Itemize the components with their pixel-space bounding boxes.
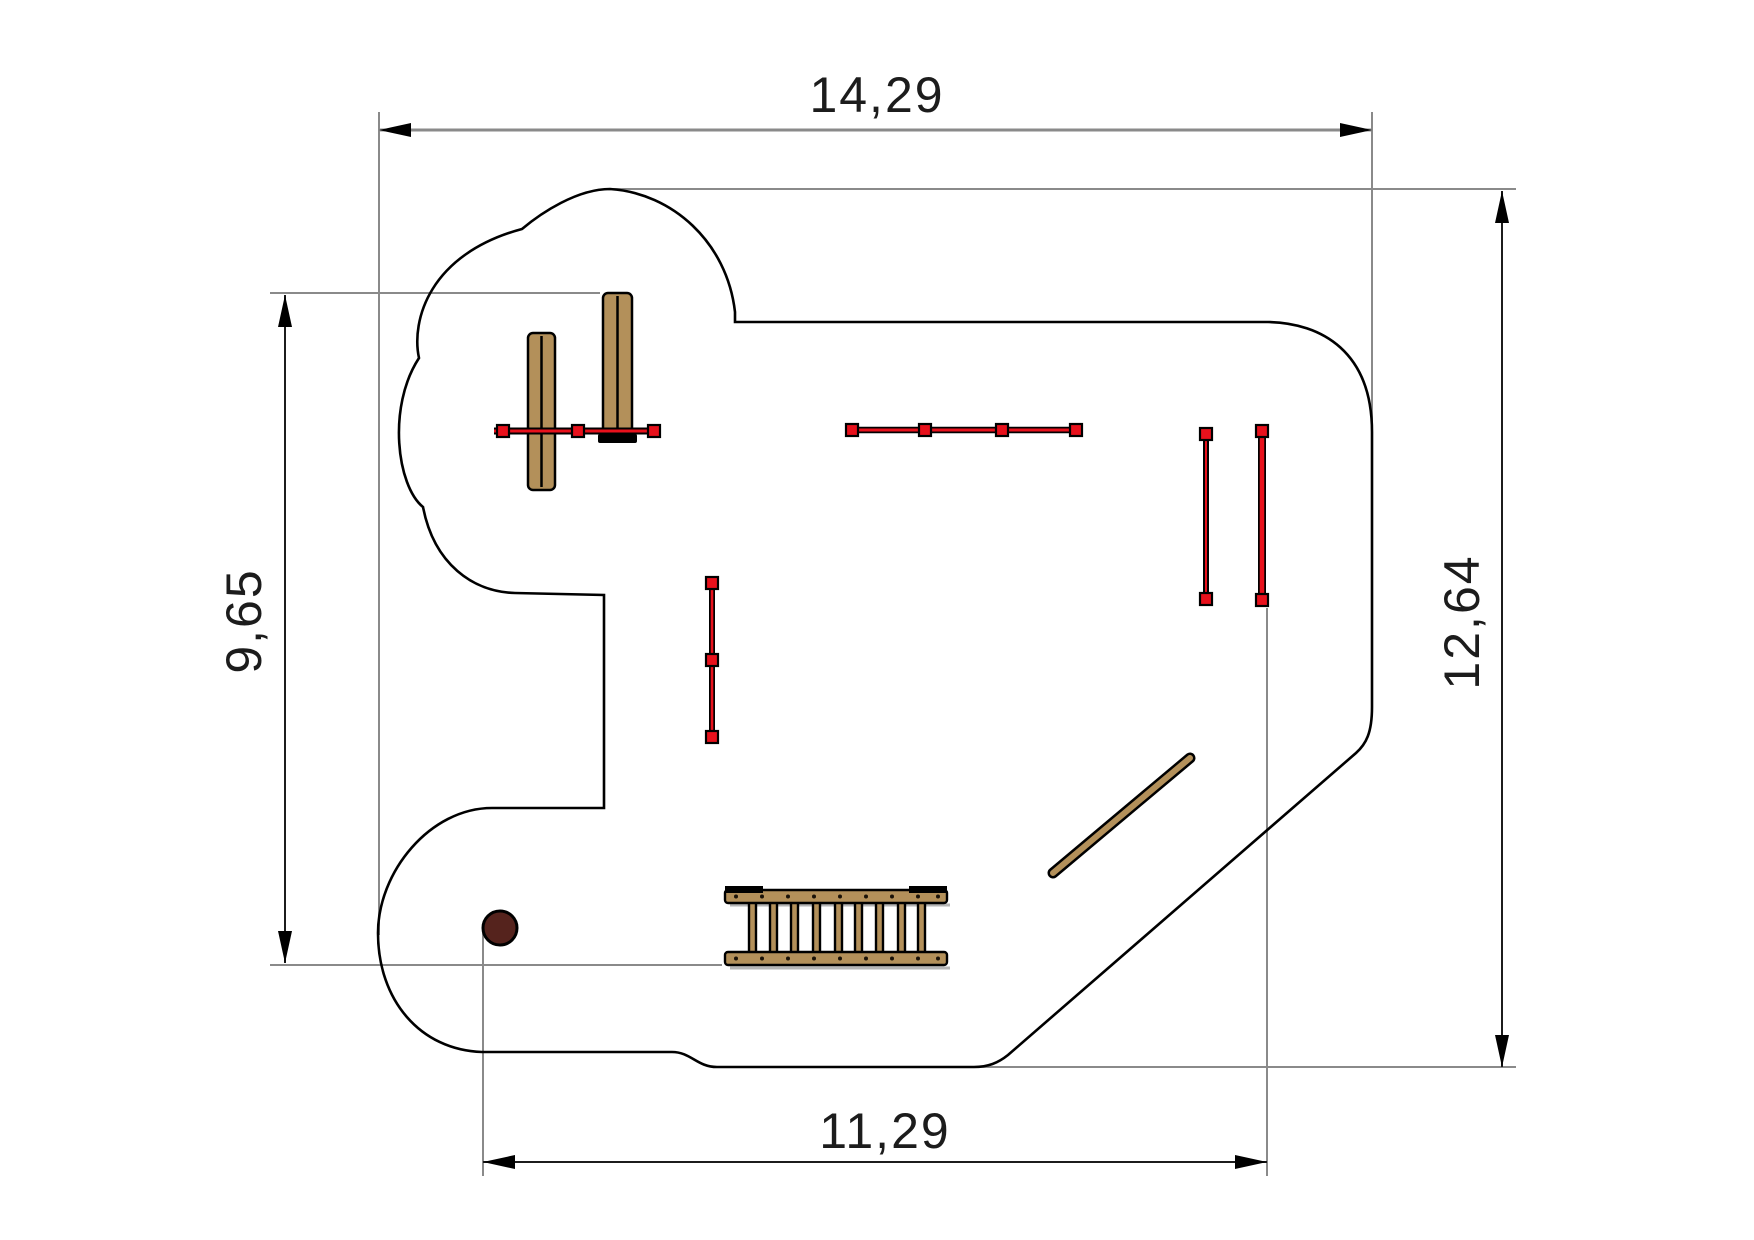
ladder-rung [876, 896, 883, 959]
ladder-wood [725, 890, 947, 965]
dimension-label-left: 9,65 [216, 568, 272, 673]
parallel-posts-fittings [1200, 425, 1268, 606]
extension-lines [270, 112, 1516, 1176]
arrow-right-icon [1340, 123, 1372, 137]
arrow-left-icon [379, 123, 411, 137]
ladder-rung [791, 896, 798, 959]
ladder-rung [898, 896, 905, 959]
ladder-rung [749, 896, 756, 959]
ladder-rung [918, 896, 925, 959]
arrow-left-icon [483, 1155, 515, 1169]
round-post [483, 911, 517, 945]
ladder-rung [855, 896, 862, 959]
dimension-right: 12,64 [1434, 191, 1509, 1067]
parallel-posts [1200, 425, 1268, 606]
inclined-beam [1053, 758, 1190, 873]
dimension-label-bottom: 11,29 [819, 1103, 950, 1159]
overhead-beam [846, 424, 1082, 436]
arrow-down-icon [278, 931, 292, 963]
dimension-top: 14,29 [379, 67, 1372, 137]
dimension-label-right: 12,64 [1434, 554, 1490, 689]
ladder-rail-bottom [725, 952, 947, 965]
short-balance-beam [706, 577, 718, 743]
inclined-beam-wood [1053, 758, 1190, 873]
swing-frame-posts [528, 293, 632, 490]
playground-plan-drawing: 14,29 9,65 12,64 11,29 [0, 0, 1754, 1240]
arrow-right-icon [1235, 1155, 1267, 1169]
dimension-left: 9,65 [216, 295, 292, 963]
arrow-up-icon [278, 295, 292, 327]
arrow-down-icon [1495, 1035, 1509, 1067]
swing-post-base-plate [598, 434, 637, 443]
ladder-rung [770, 896, 777, 959]
arrow-up-icon [1495, 191, 1509, 223]
dimension-label-top: 14,29 [809, 67, 944, 123]
ladder-rung [813, 896, 820, 959]
ladder-rung [835, 896, 842, 959]
swing-frame [494, 293, 660, 490]
horizontal-ladder [725, 886, 950, 968]
ladder-end-cap-right [909, 886, 947, 893]
ladder-end-cap-left [725, 886, 763, 893]
dimension-bottom: 11,29 [483, 1103, 1267, 1169]
technical-drawing-page: 14,29 9,65 12,64 11,29 [0, 0, 1754, 1240]
